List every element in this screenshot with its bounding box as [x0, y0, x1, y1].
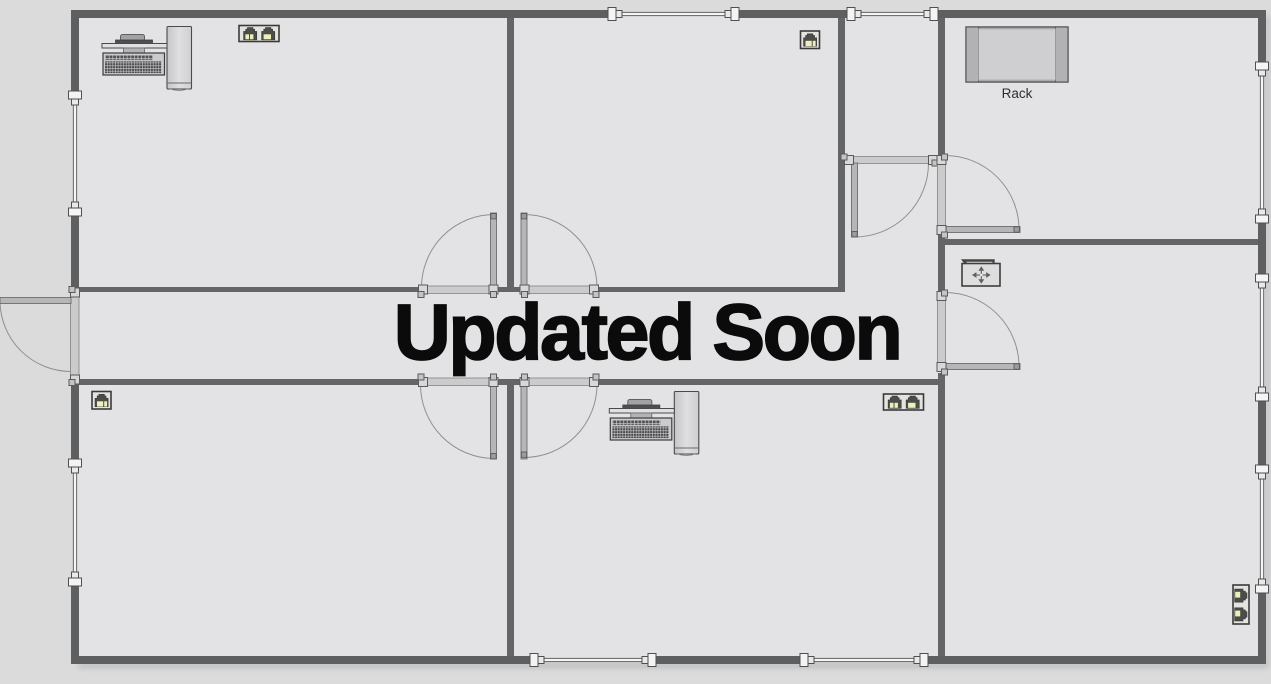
svg-text:Rack: Rack [1002, 86, 1033, 101]
svg-text:Updated Soon: Updated Soon [394, 287, 901, 376]
